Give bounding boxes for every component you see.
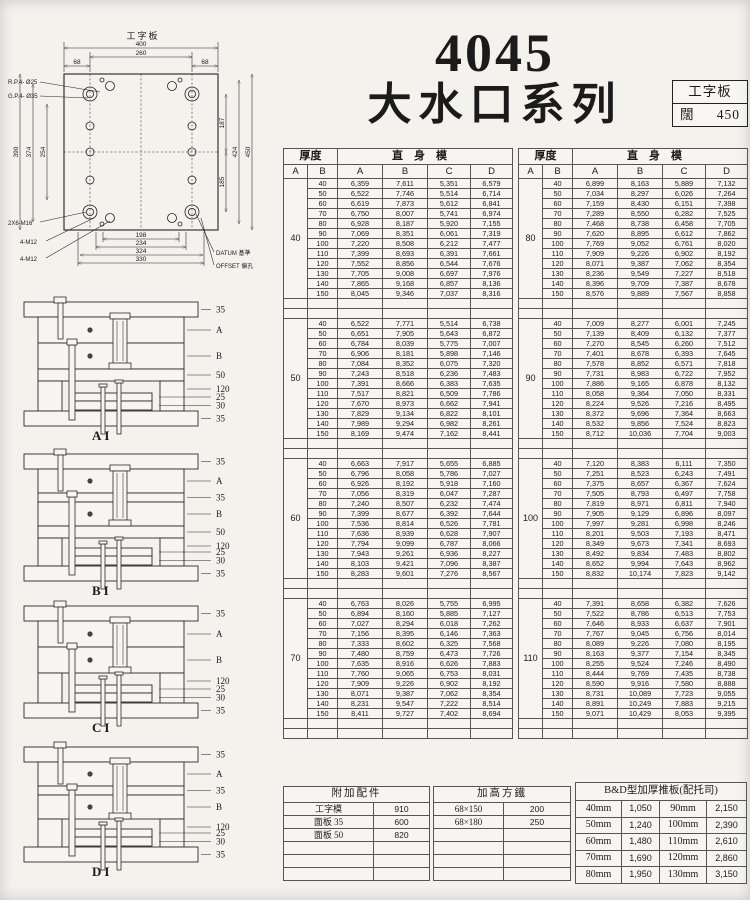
sprue-pillar: [113, 623, 127, 669]
cell: 6,761: [663, 239, 706, 249]
cell: 7,375: [573, 479, 618, 489]
cell: 150: [308, 429, 338, 439]
cell: [308, 729, 338, 739]
cell: 8,666: [383, 379, 428, 389]
cell: 8,678: [618, 349, 663, 359]
table-row: 1007,9979,2816,9988,246: [519, 519, 748, 529]
cell: 9,281: [618, 519, 663, 529]
bottom-clamp-plate: [24, 566, 198, 581]
dimension-label: A: [216, 629, 223, 639]
cell: 120: [308, 679, 338, 689]
cell: 8,349: [573, 539, 618, 549]
separator-row: [519, 729, 748, 739]
table-row: 1308,4929,8347,4838,802: [519, 549, 748, 559]
cell: 8,283: [338, 569, 383, 579]
cell: [428, 309, 471, 319]
table-row: 707,1568,3956,1467,363: [284, 629, 513, 639]
cell: 7,264: [706, 189, 748, 199]
cell: 6,497: [663, 489, 706, 499]
cell: 9,346: [383, 289, 428, 299]
spec-width-row: 闊 450: [673, 103, 747, 126]
stripper-plate: [38, 786, 184, 795]
cell: 7,769: [573, 239, 618, 249]
spacer-block-left: [38, 673, 62, 703]
cell: 8,058: [383, 469, 428, 479]
screw-hole: [87, 771, 92, 776]
table-row: 707,7679,0456,7568,014: [519, 629, 748, 639]
item-value: 600: [374, 816, 430, 829]
cell: 8,856: [383, 259, 428, 269]
cell: [428, 439, 471, 449]
cell: 7,084: [338, 359, 383, 369]
cell: [434, 868, 504, 881]
cell: [471, 299, 513, 309]
table-row: 507,2518,5236,2437,491: [519, 469, 748, 479]
guide-bolt-head: [54, 601, 66, 607]
table-row: 807,8198,9716,8117,940: [519, 499, 748, 509]
spacer-block-right: [160, 673, 184, 703]
dim-edge-left: 68: [73, 59, 81, 66]
cell: 7,160: [471, 479, 513, 489]
cell: 90: [543, 649, 573, 659]
cell: 80: [543, 359, 573, 369]
annotation-guide-pin: G.P.4- Ø35: [8, 94, 38, 100]
table-row: 506,6517,9055,6436,872: [284, 329, 513, 339]
table-header-row: 加高方鐵: [434, 787, 571, 803]
cell: 8,731: [573, 689, 618, 699]
table-row: 807,0848,3526,0757,320: [284, 359, 513, 369]
cell: [284, 439, 308, 449]
cell: 7,524: [663, 419, 706, 429]
table-header-row: 附加配件: [284, 787, 430, 803]
cell: 8,507: [383, 499, 428, 509]
cell: 8,058: [573, 389, 618, 399]
cell: 7,645: [706, 349, 748, 359]
cell: 7,387: [663, 279, 706, 289]
cell: 8,039: [383, 339, 428, 349]
cell: 8,163: [618, 179, 663, 189]
cell: 7,552: [338, 259, 383, 269]
cell: [663, 449, 706, 459]
cell: [543, 449, 573, 459]
table-row: 1408,89110,2497,8839,215: [519, 699, 748, 709]
cell: 8,227: [471, 549, 513, 559]
cell: [471, 449, 513, 459]
cell: 7,341: [663, 539, 706, 549]
cell: 100: [543, 379, 573, 389]
cell: 70: [543, 489, 573, 499]
cross-section-caption: AI: [92, 428, 112, 443]
cell: 8,858: [706, 289, 748, 299]
cell: 9,168: [383, 279, 428, 289]
separator-row: [284, 449, 513, 459]
item-name: 68×180: [434, 816, 504, 829]
cell: 8,236: [573, 269, 618, 279]
cell: [706, 729, 748, 739]
cell: 130: [543, 269, 573, 279]
table-row: 807,4688,7386,4587,705: [519, 219, 748, 229]
item-value: 2,860: [707, 850, 747, 867]
table-row: 1308,0719,3877,0628,354: [284, 689, 513, 699]
cell: 8,372: [573, 409, 618, 419]
cell: 9,008: [383, 269, 428, 279]
cell: [383, 719, 428, 729]
cell: [383, 579, 428, 589]
spec-width-value: 450: [717, 104, 740, 126]
cell: 7,568: [471, 639, 513, 649]
column-header: A: [284, 165, 308, 179]
cell: 7,477: [471, 239, 513, 249]
cell: [308, 309, 338, 319]
long-screw-shaft: [69, 649, 75, 712]
dimension-label: 35: [216, 706, 226, 716]
table-row: 507,1398,4096,1327,377: [519, 329, 748, 339]
cell: 5,755: [428, 599, 471, 609]
item-value: 1,690: [622, 850, 660, 867]
dimension-label: 50: [216, 527, 226, 537]
cell: 6,902: [428, 679, 471, 689]
cell: 7,155: [471, 219, 513, 229]
cell: 110: [308, 389, 338, 399]
table-row: 706,9068,1815,8987,146: [284, 349, 513, 359]
cell: 130: [308, 549, 338, 559]
table-row: 80mm1,950130mm3,150: [576, 867, 747, 884]
cell: 7,943: [338, 549, 383, 559]
bd-thick-ejector-table: B&D型加厚推板(配托司)40mm1,05090mm2,15050mm1,240…: [575, 782, 747, 884]
cell: 8,888: [706, 679, 748, 689]
cell: [663, 439, 706, 449]
cell: [519, 309, 543, 319]
table-row: 606,7848,0395,7757,007: [284, 339, 513, 349]
dim-right-outer2: 450: [245, 146, 252, 157]
cell: 7,222: [428, 699, 471, 709]
cell: 8,383: [618, 459, 663, 469]
cell: 7,635: [471, 379, 513, 389]
cell: 8,319: [383, 489, 428, 499]
cell: 80: [308, 639, 338, 649]
table-row: 1308,3729,6967,3648,663: [519, 409, 748, 419]
cell: 8,354: [706, 259, 748, 269]
cell: [338, 729, 383, 739]
screw-hole: [87, 353, 92, 358]
long-screw-shaft: [69, 497, 75, 575]
cell: 6,151: [663, 199, 706, 209]
cell: 6,784: [338, 339, 383, 349]
cell: 70: [308, 209, 338, 219]
cell: [284, 589, 308, 599]
item-value: 2,150: [707, 801, 747, 818]
table-row: 607,3758,6576,3677,624: [519, 479, 748, 489]
cell: 140: [308, 419, 338, 429]
dim-right-bottom: 185: [219, 176, 226, 187]
cell: 8,973: [383, 399, 428, 409]
cell: 100: [308, 239, 338, 249]
cell: 6,359: [338, 179, 383, 189]
cell: 9,003: [706, 429, 748, 439]
cell: [471, 309, 513, 319]
thickness-header: 厚度: [519, 149, 573, 165]
cell: [284, 729, 308, 739]
cell: [284, 855, 374, 868]
table-row: 1408,6529,9947,6438,962: [519, 559, 748, 569]
cell: 130: [308, 269, 338, 279]
cell: 7,626: [706, 599, 748, 609]
cell: 8,187: [383, 219, 428, 229]
cell: 7,536: [338, 519, 383, 529]
long-screw-head: [67, 643, 77, 649]
table-subheader-row: ABABCD: [284, 165, 513, 179]
item-value: 910: [374, 803, 430, 816]
cell: 7,159: [573, 199, 618, 209]
cell: 140: [308, 699, 338, 709]
straight-mold-header: 直身模: [338, 149, 513, 165]
cell: 7,758: [706, 489, 748, 499]
cell: 7,333: [338, 639, 383, 649]
cell: [519, 729, 543, 739]
dim-right-top: 187: [219, 117, 226, 128]
cell: 8,201: [573, 529, 618, 539]
cell: 7,050: [663, 389, 706, 399]
cell: 130: [308, 689, 338, 699]
cell: 8,933: [618, 619, 663, 629]
cell: 8,031: [471, 669, 513, 679]
cell: 7,156: [338, 629, 383, 639]
cell: [543, 309, 573, 319]
cell: 7,483: [663, 549, 706, 559]
table-row: 40mm1,05090mm2,150: [576, 801, 747, 818]
cell: 7,220: [338, 239, 383, 249]
column-header: D: [706, 165, 748, 179]
cell: 50: [308, 609, 338, 619]
cell: 110: [543, 389, 573, 399]
table-row: 1508,1699,4747,1628,441: [284, 429, 513, 439]
cell: 6,001: [663, 319, 706, 329]
table-row: 808,0899,2267,0808,195: [519, 639, 748, 649]
guide-bolt-shaft: [58, 455, 63, 491]
cell: 60: [308, 339, 338, 349]
cell: [338, 589, 383, 599]
cell: 6,146: [428, 629, 471, 639]
screw-hole: [87, 327, 92, 332]
separator-row: [284, 842, 430, 855]
spacer-block-left: [38, 819, 62, 847]
cell: 8,192: [383, 479, 428, 489]
ejector-pin-head: [99, 822, 107, 825]
cross-section-CI: 35AB120253035CI: [14, 600, 264, 743]
cell: 7,670: [338, 399, 383, 409]
cell: 8,693: [383, 249, 428, 259]
table-row: 1007,8869,1656,8788,132: [519, 379, 748, 389]
cell: 6,626: [428, 659, 471, 669]
cell: 10,036: [618, 429, 663, 439]
cell: 7,905: [573, 509, 618, 519]
cell: 7,319: [471, 229, 513, 239]
table-title: 加高方鐵: [434, 787, 571, 803]
separator-row: [284, 729, 513, 739]
table-row: 1207,7949,0996,7878,066: [284, 539, 513, 549]
cell: 7,819: [573, 499, 618, 509]
thickness-group-label: 90: [519, 319, 543, 439]
cell: 8,395: [383, 629, 428, 639]
dimension-label: 30: [216, 837, 226, 847]
table-row: 1308,73110,0897,7239,055: [519, 689, 748, 699]
cell: 80: [543, 499, 573, 509]
cell: 80: [308, 359, 338, 369]
ejector-retainer-plate: [70, 548, 152, 556]
table-row: 907,0698,3516,0617,319: [284, 229, 513, 239]
cell: 8,354: [471, 689, 513, 699]
cell: 6,651: [338, 329, 383, 339]
cell: [618, 309, 663, 319]
cell: 9,395: [706, 709, 748, 719]
cell: 7,512: [706, 339, 748, 349]
table-row: 1207,6708,9736,6627,941: [284, 399, 513, 409]
cell: 6,750: [338, 209, 383, 219]
ejector-pin-head: [99, 384, 107, 387]
cell: 60: [543, 199, 573, 209]
cell: 7,391: [338, 379, 383, 389]
cell: 130: [543, 549, 573, 559]
cell: [573, 299, 618, 309]
cell: 7,377: [706, 329, 748, 339]
cell: 7,270: [573, 339, 618, 349]
separator-row: [284, 855, 430, 868]
cell: 100: [543, 659, 573, 669]
table-row: 68×150200: [434, 803, 571, 816]
cell: [543, 729, 573, 739]
guide-bolt-head: [54, 449, 66, 455]
cell: [428, 579, 471, 589]
table-row: 907,3998,6776,3927,644: [284, 509, 513, 519]
cell: 7,940: [706, 499, 748, 509]
cell: 8,657: [618, 479, 663, 489]
bottom-clamp-plate: [24, 411, 198, 426]
cell: 9,549: [618, 269, 663, 279]
sprue-bush-head: [110, 465, 130, 471]
table-row: 606,6197,8735,6126,841: [284, 199, 513, 209]
cell: [543, 579, 573, 589]
cell: 8,962: [706, 559, 748, 569]
cell: [543, 589, 573, 599]
cell: [663, 579, 706, 589]
screw-hole: [87, 631, 92, 636]
cell: 9,524: [618, 659, 663, 669]
mold-section-drawing: 35AB120253035CI: [14, 600, 264, 738]
item-value: 1,480: [622, 834, 660, 851]
cell: 7,474: [471, 499, 513, 509]
cell: 6,857: [428, 279, 471, 289]
cell: 8,471: [706, 529, 748, 539]
cell: 140: [543, 419, 573, 429]
catalog-page: 4045 大水口系列 工字板 闊 450 工字板: [0, 0, 750, 900]
cell: 6,878: [663, 379, 706, 389]
cell: 6,526: [428, 519, 471, 529]
separator-row: [434, 829, 571, 842]
cell: [504, 868, 571, 881]
cell: 140: [543, 699, 573, 709]
cell: 6,382: [663, 599, 706, 609]
cell: 9,387: [383, 689, 428, 699]
cell: 9,387: [618, 259, 663, 269]
dimension-label: A: [216, 769, 223, 779]
cell: [374, 842, 430, 855]
cell: 110: [308, 529, 338, 539]
cell: [284, 719, 308, 729]
cell: [428, 449, 471, 459]
spacer-block-right: [160, 381, 184, 411]
thickness-group-label: 80: [519, 179, 543, 299]
cell: 7,873: [383, 199, 428, 209]
cell: 90: [543, 229, 573, 239]
item-value: 1,950: [622, 867, 660, 884]
ejector-base-plate: [70, 837, 152, 846]
cell: 50: [308, 469, 338, 479]
cell: 6,522: [338, 319, 383, 329]
annotation-return-pin: R.P.4- Ø25: [8, 80, 38, 86]
cell: 7,120: [573, 459, 618, 469]
cell: 8,396: [573, 279, 618, 289]
cell: 8,097: [706, 509, 748, 519]
series-name: 大水口系列: [330, 81, 660, 129]
cell: 150: [308, 289, 338, 299]
cell: 7,726: [471, 649, 513, 659]
sprue-pillar: [113, 319, 127, 365]
cell: 40: [308, 459, 338, 469]
cell: 8,971: [618, 499, 663, 509]
ejector-pin: [101, 679, 105, 726]
cell: 6,753: [428, 669, 471, 679]
cell: 7,753: [706, 609, 748, 619]
support-plate: [38, 526, 184, 538]
table-title: B&D型加厚推板(配托司): [576, 783, 747, 801]
cell: [338, 299, 383, 309]
dimension-label: 30: [216, 693, 226, 703]
table-row: 50mm1,240100mm2,390: [576, 817, 747, 834]
cell: 110: [543, 669, 573, 679]
table-row: 506,5227,7465,5146,714: [284, 189, 513, 199]
cell: 60: [543, 479, 573, 489]
cell: 6,714: [471, 189, 513, 199]
cell: 8,192: [471, 679, 513, 689]
cell: 140: [308, 559, 338, 569]
cell: 6,018: [428, 619, 471, 629]
item-name: 50mm: [576, 817, 622, 834]
table-row: 1007,3918,6666,3837,635: [284, 379, 513, 389]
cell: 7,162: [428, 429, 471, 439]
column-header: D: [471, 165, 513, 179]
cell: 8,523: [618, 469, 663, 479]
thickness-group-label: 40: [284, 179, 308, 299]
cell: 9,052: [618, 239, 663, 249]
cell: 7,056: [338, 489, 383, 499]
cell: [383, 729, 428, 739]
cell: 8,441: [471, 429, 513, 439]
table-row: 908,1639,3777,1548,345: [519, 649, 748, 659]
cell: 8,652: [573, 559, 618, 569]
table-row: 607,0278,2946,0187,262: [284, 619, 513, 629]
table-row: 607,1598,4306,1517,398: [519, 199, 748, 209]
table-row: 607,6468,9336,6377,901: [519, 619, 748, 629]
cell: 7,829: [338, 409, 383, 419]
cell: 8,007: [383, 209, 428, 219]
separator-row: [519, 449, 748, 459]
support-plate: [38, 369, 184, 381]
cell: 7,262: [471, 619, 513, 629]
thickness-group-label: 50: [284, 319, 308, 439]
column-header: B: [618, 165, 663, 179]
cell: 7,909: [338, 679, 383, 689]
cell: [706, 309, 748, 319]
